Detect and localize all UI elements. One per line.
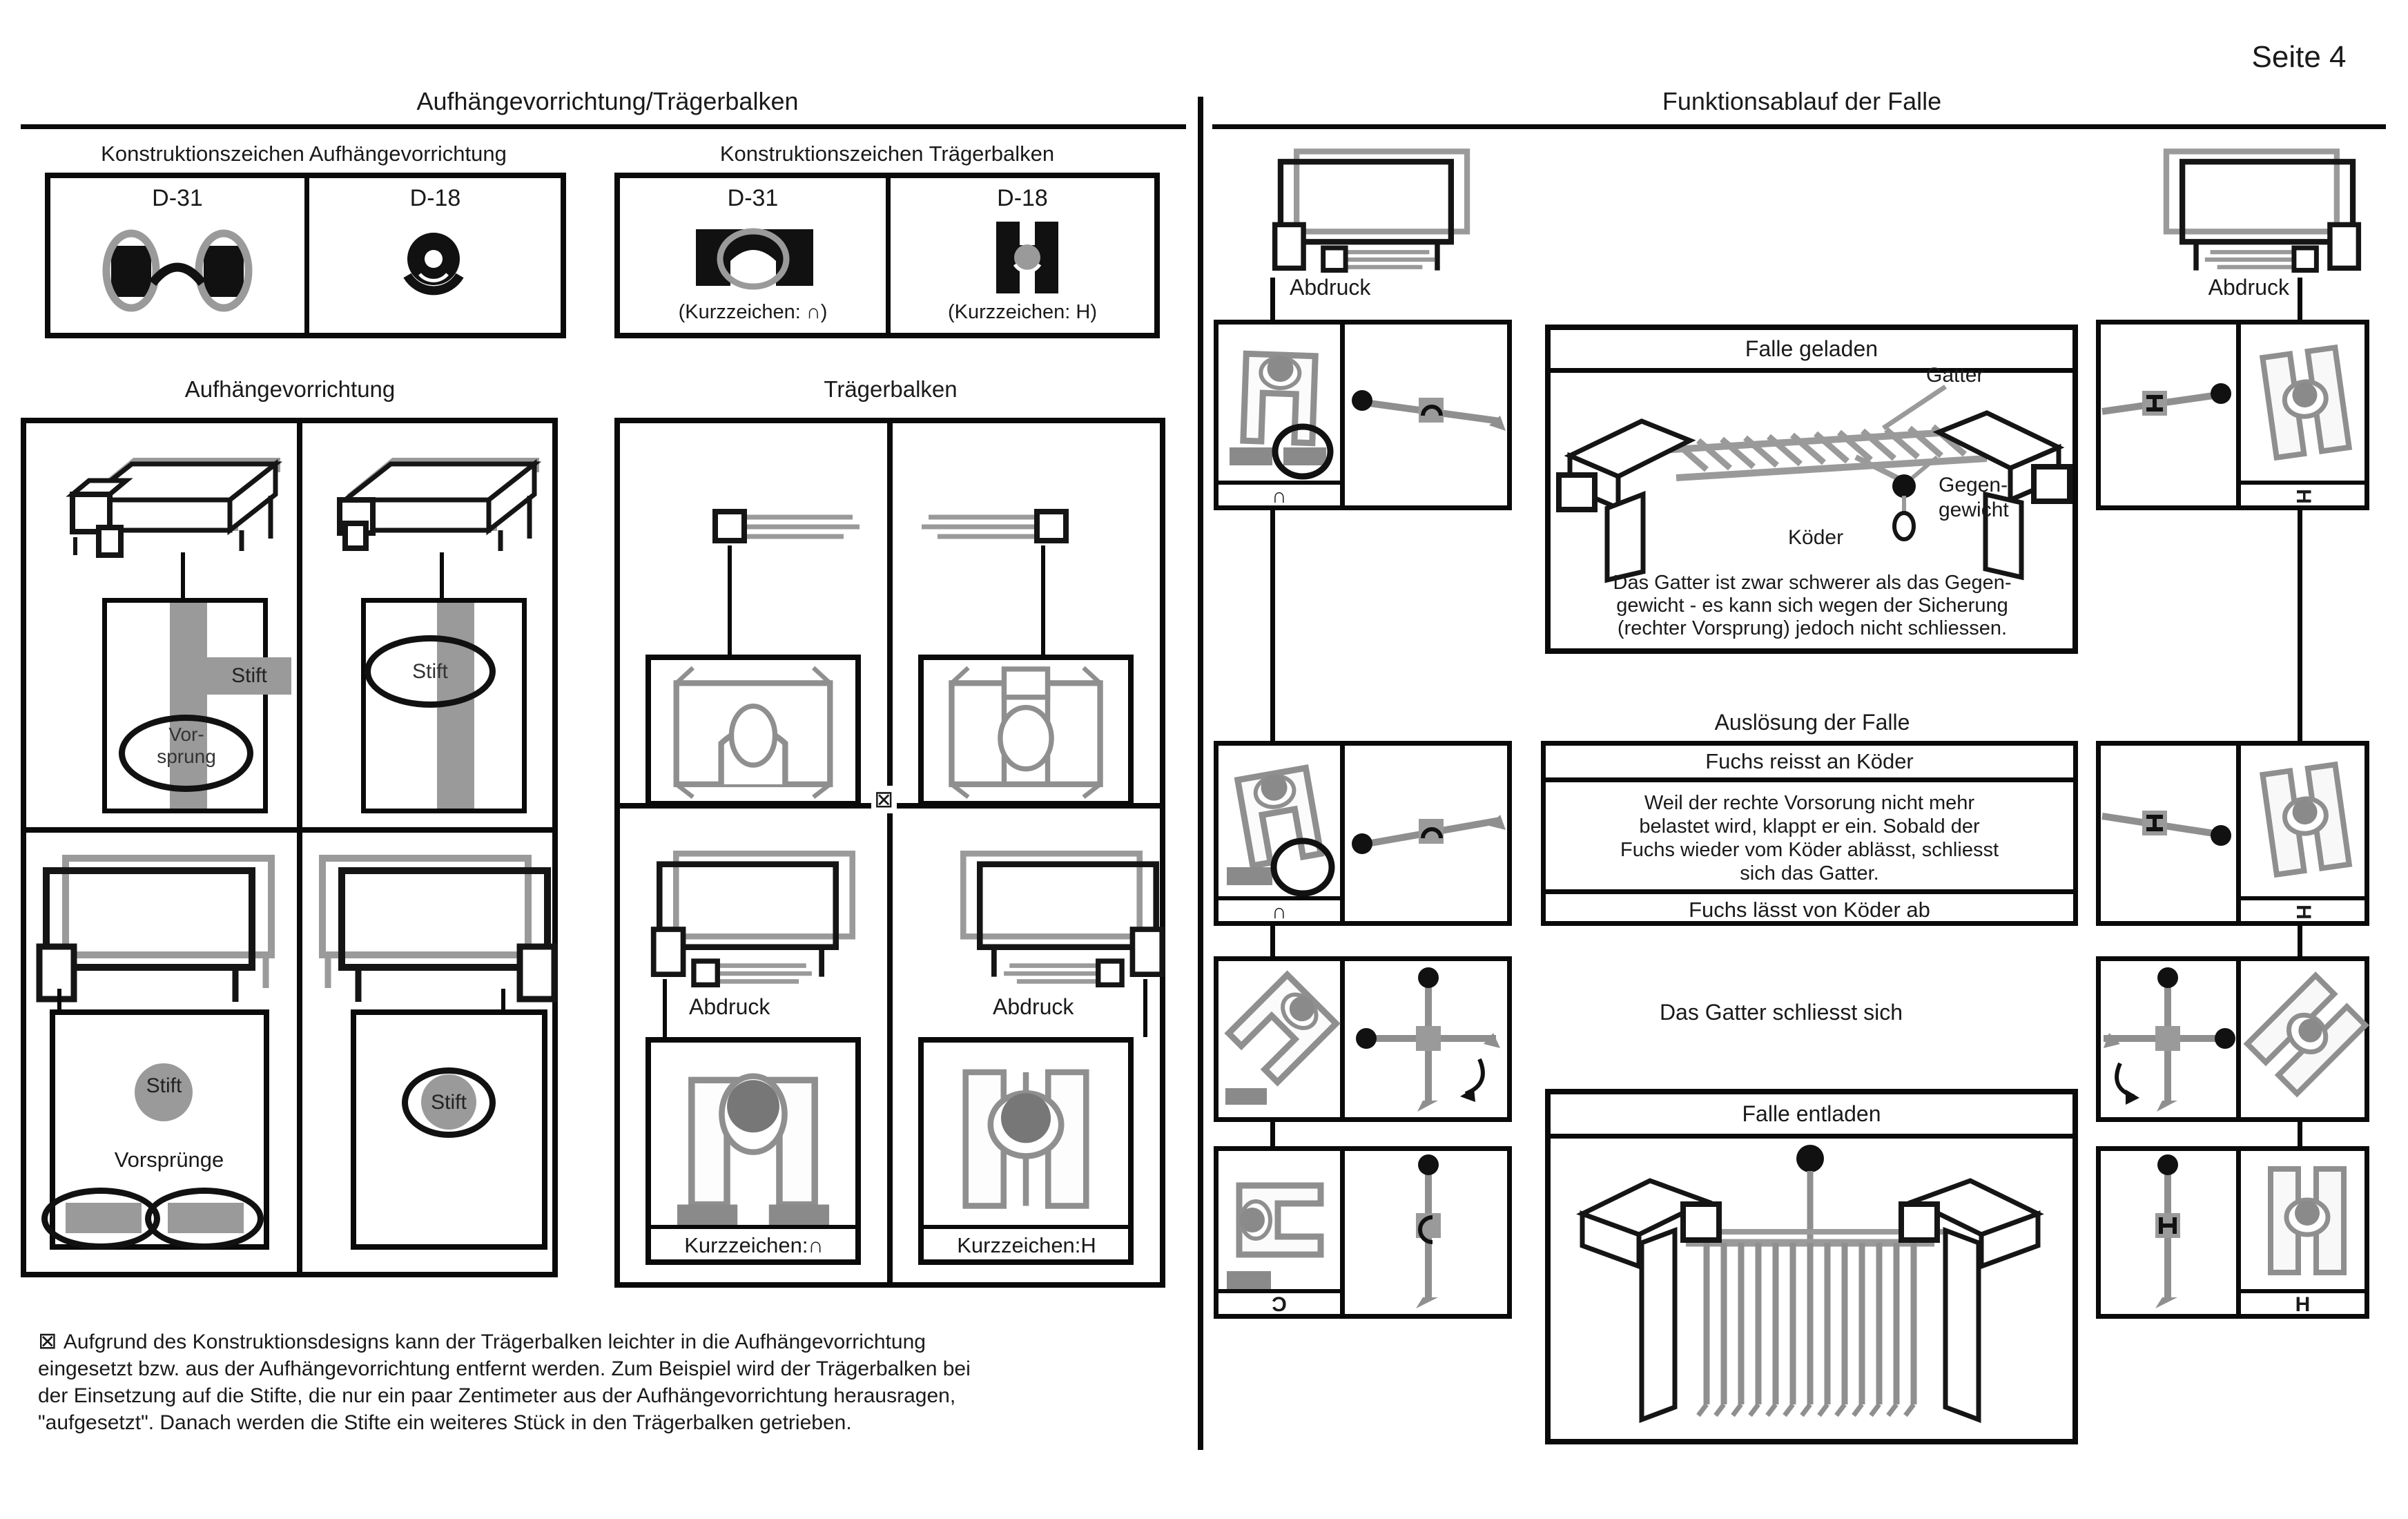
suspension-d18-icon <box>392 223 475 316</box>
pin-line <box>440 552 444 599</box>
gatter-schliesst-text: Das Gatter schliesst sich <box>1540 1000 2023 1025</box>
abdruck-label: Abdruck <box>689 994 770 1020</box>
abdruck-label: Abdruck <box>2137 275 2289 300</box>
cap-symbol: ∩ <box>1272 900 1287 924</box>
lever-cross-drawing <box>1347 964 1510 1117</box>
suspension-d31-icon <box>99 226 258 316</box>
pane-divider <box>1340 325 1345 505</box>
orientation-strip: Ɔ <box>1218 1289 1340 1314</box>
beam-3d-drawing <box>66 434 287 561</box>
cap-profile-secured-drawing <box>1224 330 1336 481</box>
imprint-cap-drawing <box>651 1043 855 1228</box>
pin-imprint-drawing <box>1320 243 1437 276</box>
flow-connector <box>2298 925 2302 956</box>
left-title: Aufhängevorrichtung/Trägerbalken <box>207 87 1008 116</box>
lever-drawing <box>2102 327 2233 505</box>
pin-imprint-drawing <box>2202 243 2320 276</box>
table-title-traegerbalken: Konstruktionszeichen Trägerbalken <box>645 142 1129 166</box>
table-title-aufhaengevorrichtung: Konstruktionszeichen Aufhängevorrichtung <box>62 142 545 166</box>
vorspruenge-label: Vorsprünge <box>90 1148 249 1172</box>
col-header-d31: D-31 <box>620 185 886 212</box>
pane-divider <box>1340 961 1345 1117</box>
pin-line <box>728 545 732 656</box>
section-title-traegerbalken: Trägerbalken <box>683 376 1098 403</box>
flow-connector <box>2298 278 2302 320</box>
stift-label: Stift <box>124 1074 204 1098</box>
flow-connector <box>1270 278 1275 320</box>
h-profile-drawing <box>2240 330 2369 481</box>
beam-h-3d-drawing <box>924 660 1128 801</box>
table-column-divider <box>886 178 891 334</box>
imprint-cap-box: Kurzzeichen:∩ <box>645 1037 861 1265</box>
beam-3d-drawing <box>324 434 545 561</box>
kz-table-aufhaengevorrichtung: D-31 D-18 <box>45 173 566 338</box>
page-number: Seite 4 <box>2209 40 2389 75</box>
pane-divider <box>1340 1151 1345 1314</box>
kurzzeichen-cap-note: (Kurzzeichen: ∩) <box>620 301 886 324</box>
flow-connector <box>1270 510 1275 741</box>
beam-cap-3d-box <box>645 655 861 806</box>
document-page: Seite 4 Aufhängevorrichtung/Trägerbalken… <box>0 0 2408 1519</box>
kurzzeichen-h-note: (Kurzzeichen: H) <box>891 301 1154 324</box>
pin-line <box>181 552 185 599</box>
h-symbol: H <box>2295 1293 2311 1317</box>
imprint-h-drawing <box>924 1043 1128 1228</box>
h-profile-upright-drawing <box>2240 1154 2369 1289</box>
h-profile-drawing <box>2240 750 2369 896</box>
cap-profile-released-drawing <box>1224 751 1336 898</box>
state-box-h-closed: H <box>2096 1146 2369 1319</box>
falle-entladen-title: Falle entladen <box>1551 1094 2072 1139</box>
orientation-strip: H <box>2236 1289 2369 1314</box>
state-box-cap-loaded: ∩ <box>1214 320 1512 510</box>
table-column-divider <box>304 178 309 334</box>
cap-symbol: ∩ <box>1272 485 1287 508</box>
h-symbol-rotated: H <box>2291 904 2314 920</box>
beam-d31-icon <box>692 221 817 293</box>
stift-label: Stift <box>365 635 496 708</box>
kurzzeichen-cap-strip: Kurzzeichen:∩ <box>651 1225 857 1261</box>
pin-line <box>57 989 61 1011</box>
abdruck-label: Abdruck <box>1290 275 1370 300</box>
pane-divider <box>1340 746 1345 921</box>
pin-line <box>663 979 667 1037</box>
lever-drawing <box>2102 748 2233 921</box>
lever-vertical-drawing <box>1347 1152 1510 1314</box>
orientation-strip: H <box>2236 896 2369 921</box>
koeder-label: Köder <box>1788 526 1892 550</box>
vorsprung-callout <box>41 1188 160 1250</box>
pin-line <box>1041 545 1045 656</box>
pin-imprint-drawing <box>690 956 815 991</box>
traegerbalken-vdivider <box>887 418 893 1288</box>
flow-connector <box>1270 925 1275 956</box>
gegengewicht-label: Gegen- gewicht <box>1939 473 2009 523</box>
state-box-cap-closing <box>1214 956 1512 1122</box>
footnote-marker-inline: ⊠ <box>871 786 897 813</box>
ausloesung-footer: Fuchs lässt von Köder ab <box>1546 889 2073 926</box>
ausloesung-title: Auslösung der Falle <box>1560 710 2064 735</box>
right-title: Funktionsablauf der Falle <box>1457 87 2147 116</box>
pin-imprint-drawing <box>1001 956 1125 991</box>
footnote-line: eingesetzt bzw. aus der Aufhängevorricht… <box>38 1355 1156 1382</box>
h-symbol-rotated: H <box>2291 489 2314 504</box>
cap-profile-closed-drawing <box>1223 1155 1337 1293</box>
ausloesung-header: Fuchs reisst an Köder <box>1546 746 2073 782</box>
state-box-cap-closed: Ɔ <box>1214 1146 1512 1319</box>
vorsprung-callout <box>145 1188 264 1250</box>
beam-h-3d-box <box>918 655 1134 806</box>
abdruck-label: Abdruck <box>993 994 1074 1020</box>
footnote: ⊠ Aufgrund des Konstruktionsdesigns kann… <box>38 1327 1156 1436</box>
lever-drawing <box>1347 748 1510 921</box>
vorsprung-label: Vor- sprung <box>124 724 249 768</box>
frame-front-drawing <box>314 853 556 1012</box>
beam-d18-icon <box>979 216 1076 299</box>
falle-geladen-text: Das Gatter ist zwar schwerer als das Geg… <box>1560 572 2064 640</box>
flow-connector <box>1270 1121 1275 1146</box>
cap-profile-rotating-drawing <box>1221 965 1339 1113</box>
pin-line <box>1143 979 1147 1037</box>
right-title-rule <box>1212 124 2386 129</box>
beam-cap-3d-drawing <box>651 660 855 801</box>
col-header-d18: D-18 <box>309 185 561 212</box>
footnote-line: der Einsetzung auf die Stifte, die nur e… <box>38 1382 1156 1409</box>
pin-imprint-drawing <box>711 506 863 548</box>
footnote-line: "aufgesetzt". Danach werden die Stifte e… <box>38 1409 1156 1436</box>
lever-vertical-drawing <box>2102 1152 2233 1314</box>
flow-connector <box>2298 1121 2302 1146</box>
orientation-strip: ∩ <box>1218 896 1340 921</box>
col-header-d31: D-31 <box>50 185 304 212</box>
lever-drawing <box>1347 327 1510 505</box>
imprint-h-box: Kurzzeichen:H <box>918 1037 1134 1265</box>
trap-closed-drawing <box>1562 1138 2059 1435</box>
state-box-cap-triggered: ∩ <box>1214 741 1512 926</box>
h-profile-rotating-drawing <box>2240 962 2369 1114</box>
state-box-h-loaded: H <box>2096 320 2369 510</box>
pin-line <box>501 989 505 1011</box>
col-header-d18: D-18 <box>891 185 1154 212</box>
stift-label: Stift <box>402 1067 496 1138</box>
center-divider <box>1198 97 1203 1450</box>
footnote-marker: ⊠ <box>38 1328 64 1353</box>
gatter-label: Gatter <box>1926 364 2037 387</box>
footnote-line: Aufgrund des Konstruktionsdesigns kann d… <box>64 1331 926 1353</box>
kurzzeichen-h-strip: Kurzzeichen:H <box>924 1225 1129 1261</box>
orientation-strip: H <box>2236 481 2369 505</box>
orientation-strip: ∩ <box>1218 481 1340 505</box>
pin-imprint-drawing <box>918 506 1070 548</box>
cap-mirrored-symbol: Ɔ <box>1272 1293 1287 1317</box>
left-title-rule <box>21 124 1186 129</box>
state-box-h-triggered: H <box>2096 741 2369 926</box>
kz-table-traegerbalken: D-31 D-18 (Kurzzeichen: ∩) (Kurzzeichen:… <box>614 173 1160 338</box>
aufhaengevorrichtung-vdivider <box>297 418 302 1277</box>
lever-cross-drawing <box>2102 964 2233 1117</box>
frame-front-drawing <box>38 853 280 1012</box>
state-box-h-closing <box>2096 956 2369 1122</box>
flow-connector <box>2298 510 2302 741</box>
section-title-aufhaengevorrichtung: Aufhängevorrichtung <box>83 376 497 403</box>
aufhaengevorrichtung-hdivider <box>21 827 558 833</box>
stift-label: Stift <box>207 657 291 695</box>
ausloesung-text: Weil der rechte Vorsorung nicht mehr bel… <box>1546 791 2073 885</box>
ausloesung-box: Fuchs reisst an Köder Weil der rechte Vo… <box>1541 741 2078 926</box>
